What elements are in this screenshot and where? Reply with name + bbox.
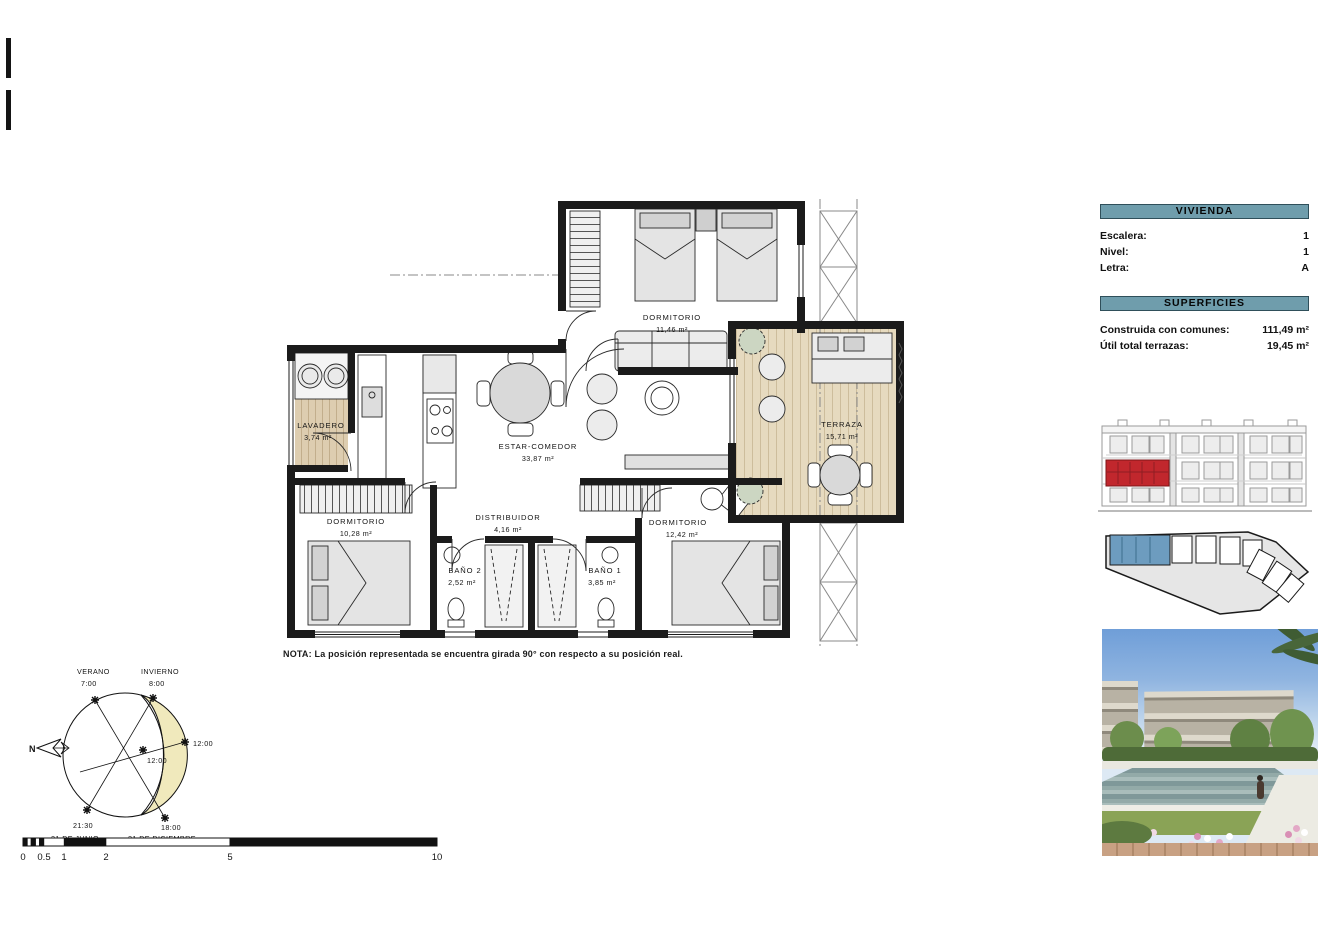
shower: [538, 545, 576, 627]
coffee-table: [645, 381, 679, 415]
photo-person: [1257, 781, 1264, 799]
room-label: DORMITORIO: [327, 517, 385, 526]
single-bed: [717, 209, 777, 301]
scale-tick: 5: [227, 852, 232, 863]
shower: [485, 545, 523, 627]
info-row: Nivel:1: [1100, 244, 1309, 260]
plan-note: NOTA: La posición representada se encuen…: [283, 649, 703, 659]
toilet: [598, 598, 614, 627]
armchair: [587, 410, 617, 440]
room-label: BAÑO 1: [588, 566, 621, 575]
sun-label-invierno: INVIERNO: [141, 667, 179, 676]
building-elevation: [1098, 414, 1312, 518]
highlighted-unit-red: [1106, 460, 1169, 486]
wardrobe: [300, 485, 412, 513]
sun-path-diagram: VERANO 7:00 INVIERNO 8:00 12:00 12:00 21…: [25, 660, 230, 850]
double-bed: [672, 541, 780, 625]
room-label: BAÑO 2: [448, 566, 481, 575]
area-value: 111,49 m²: [1262, 322, 1309, 338]
floor-plan: DORMITORIO 11,46 m² LAVADERO 3,74 m² EST…: [280, 193, 910, 653]
sun-label-verano: VERANO: [77, 667, 110, 676]
plan-sheet: { "plan": { "note": "NOTA: La posición r…: [0, 0, 1323, 936]
single-bed: [635, 209, 695, 301]
vivienda-header: VIVIENDA: [1100, 204, 1309, 219]
toilet: [448, 598, 464, 627]
scale-tick: 0.5: [37, 852, 50, 863]
room-area: 11,46 m²: [656, 325, 688, 334]
photo-pool-deck: [1102, 761, 1318, 769]
sun-label-2130: 21:30: [73, 821, 93, 830]
wardrobe: [570, 211, 600, 307]
room-area: 4,16 m²: [494, 525, 522, 534]
sun-label-noon-center: 12:00: [147, 756, 167, 765]
room-label: TERRAZA: [821, 420, 863, 429]
sheet-edge-mark: [6, 90, 11, 130]
sofa: [615, 331, 727, 371]
wardrobe: [580, 485, 660, 511]
scale-bar-segments: [23, 838, 437, 846]
photo-flowers: [1194, 833, 1201, 840]
info-row: Letra:A: [1100, 260, 1309, 276]
room-area: 12,42 m²: [666, 530, 698, 539]
area-label: Útil total terrazas:: [1100, 338, 1189, 354]
info-label: Escalera:: [1100, 228, 1147, 244]
room-area: 3,74 m²: [304, 433, 332, 442]
sheet-edge-mark: [6, 38, 11, 78]
room-label: DORMITORIO: [649, 518, 707, 527]
laundry-machines: [295, 353, 348, 399]
room-area: 2,52 m²: [448, 578, 476, 587]
scale-bar: 0 0.5 1 2 5 10: [20, 834, 450, 864]
room-label: ESTAR-COMEDOR: [499, 442, 578, 451]
highlighted-unit-blue: [1110, 535, 1170, 565]
room-label: LAVADERO: [297, 421, 344, 430]
site-plan: [1100, 524, 1314, 620]
scale-tick: 10: [432, 852, 443, 863]
sun-label-verano-hora: 7:00: [81, 679, 97, 688]
info-value: 1: [1303, 228, 1309, 244]
terrace-chair: [759, 354, 785, 380]
area-row: Útil total terrazas:19,45 m²: [1100, 338, 1309, 354]
info-value: A: [1301, 260, 1309, 276]
sun-label-invierno-hora: 8:00: [149, 679, 165, 688]
superficies-rows: Construida con comunes:111,49 m² Útil to…: [1100, 322, 1309, 354]
photo-render: [1102, 629, 1318, 856]
superficies-header: SUPERFICIES: [1100, 296, 1309, 311]
nightstand: [696, 209, 716, 231]
room-label: DORMITORIO: [643, 313, 701, 322]
area-row: Construida con comunes:111,49 m²: [1100, 322, 1309, 338]
tv-console: [625, 455, 735, 469]
area-value: 19,45 m²: [1267, 338, 1309, 354]
room-area: 15,71 m²: [826, 432, 858, 441]
scale-tick: 0: [20, 852, 25, 863]
plant: [739, 328, 765, 354]
terrace-daybed: [812, 333, 892, 383]
scale-tick: 1: [61, 852, 66, 863]
dining-table: [477, 351, 564, 436]
chair: [701, 488, 723, 510]
room-label: DISTRIBUIDOR: [475, 513, 540, 522]
sun-label-1800: 18:00: [161, 823, 181, 832]
sun-label-noon-right: 12:00: [193, 739, 213, 748]
double-bed: [308, 541, 410, 625]
north-label: N: [29, 744, 36, 754]
sink: [602, 547, 618, 563]
area-label: Construida con comunes:: [1100, 322, 1230, 338]
room-area: 10,28 m²: [340, 529, 372, 538]
room-area: 3,85 m²: [588, 578, 616, 587]
info-label: Letra:: [1100, 260, 1129, 276]
vivienda-rows: Escalera:1 Nivel:1 Letra:A: [1100, 228, 1309, 276]
photo-flowers: [1293, 825, 1300, 832]
scale-tick: 2: [103, 852, 108, 863]
sun-geometry: [63, 693, 187, 818]
kitchen-counter: [358, 355, 456, 488]
terrace-chair: [759, 396, 785, 422]
photo-paving: [1102, 843, 1318, 856]
photo-person-head: [1257, 775, 1263, 781]
info-row: Escalera:1: [1100, 228, 1309, 244]
armchair: [587, 374, 617, 404]
info-label: Nivel:: [1100, 244, 1129, 260]
room-area: 33,87 m²: [522, 454, 554, 463]
info-value: 1: [1303, 244, 1309, 260]
